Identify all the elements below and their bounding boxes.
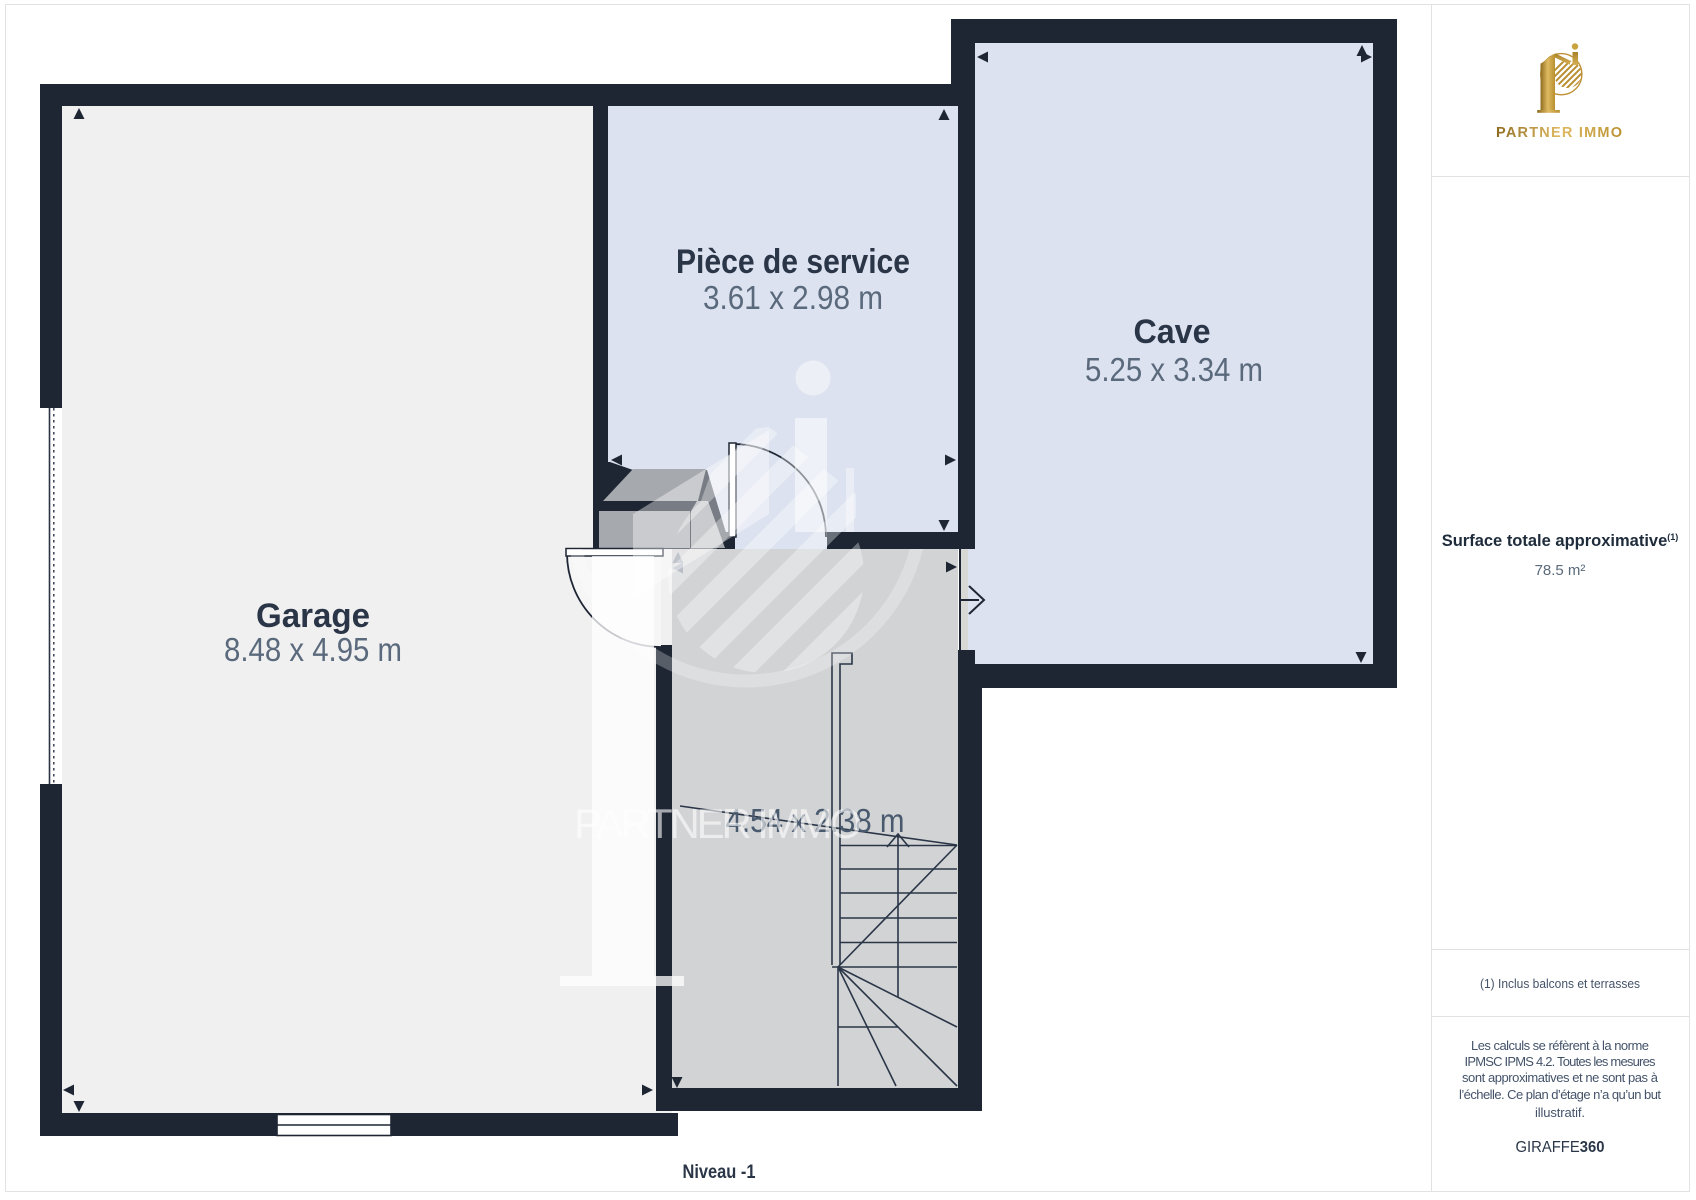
svg-text:illustratif.: illustratif. [1535, 1105, 1585, 1120]
svg-text:IPMSC IPMS 4.2. Toutes les mes: IPMSC IPMS 4.2. Toutes les mesures [1465, 1054, 1657, 1069]
svg-text:Cave: Cave [1134, 313, 1211, 351]
svg-text:Pièce de service: Pièce de service [676, 243, 910, 281]
svg-text:Surface totale approximative(1: Surface totale approximative(1) [1442, 532, 1679, 550]
svg-text:78.5 m²: 78.5 m² [1535, 562, 1586, 579]
svg-text:Les calculs se réfèrent à la n: Les calculs se réfèrent à la norme [1471, 1038, 1649, 1053]
svg-text:PARTNER IMMO: PARTNER IMMO [574, 800, 862, 847]
svg-text:3.61 x 2.98 m: 3.61 x 2.98 m [703, 279, 883, 316]
svg-text:8.48 x 4.95 m: 8.48 x 4.95 m [224, 631, 402, 668]
svg-text:GIRAFFE360: GIRAFFE360 [1516, 1139, 1605, 1156]
svg-text:PARTNER IMMO: PARTNER IMMO [1496, 125, 1624, 141]
svg-text:Niveau -1: Niveau -1 [683, 1162, 756, 1183]
svg-text:(1) Inclus balcons et terrasse: (1) Inclus balcons et terrasses [1480, 976, 1640, 991]
svg-text:Garage: Garage [256, 597, 370, 635]
svg-text:l’échelle. Ce plan d’étage n’a: l’échelle. Ce plan d’étage n’a qu’un but [1459, 1087, 1661, 1102]
svg-text:sont approximatives et ne sont: sont approximatives et ne sont pas à [1462, 1070, 1659, 1085]
svg-text:5.25 x 3.34 m: 5.25 x 3.34 m [1085, 351, 1263, 388]
